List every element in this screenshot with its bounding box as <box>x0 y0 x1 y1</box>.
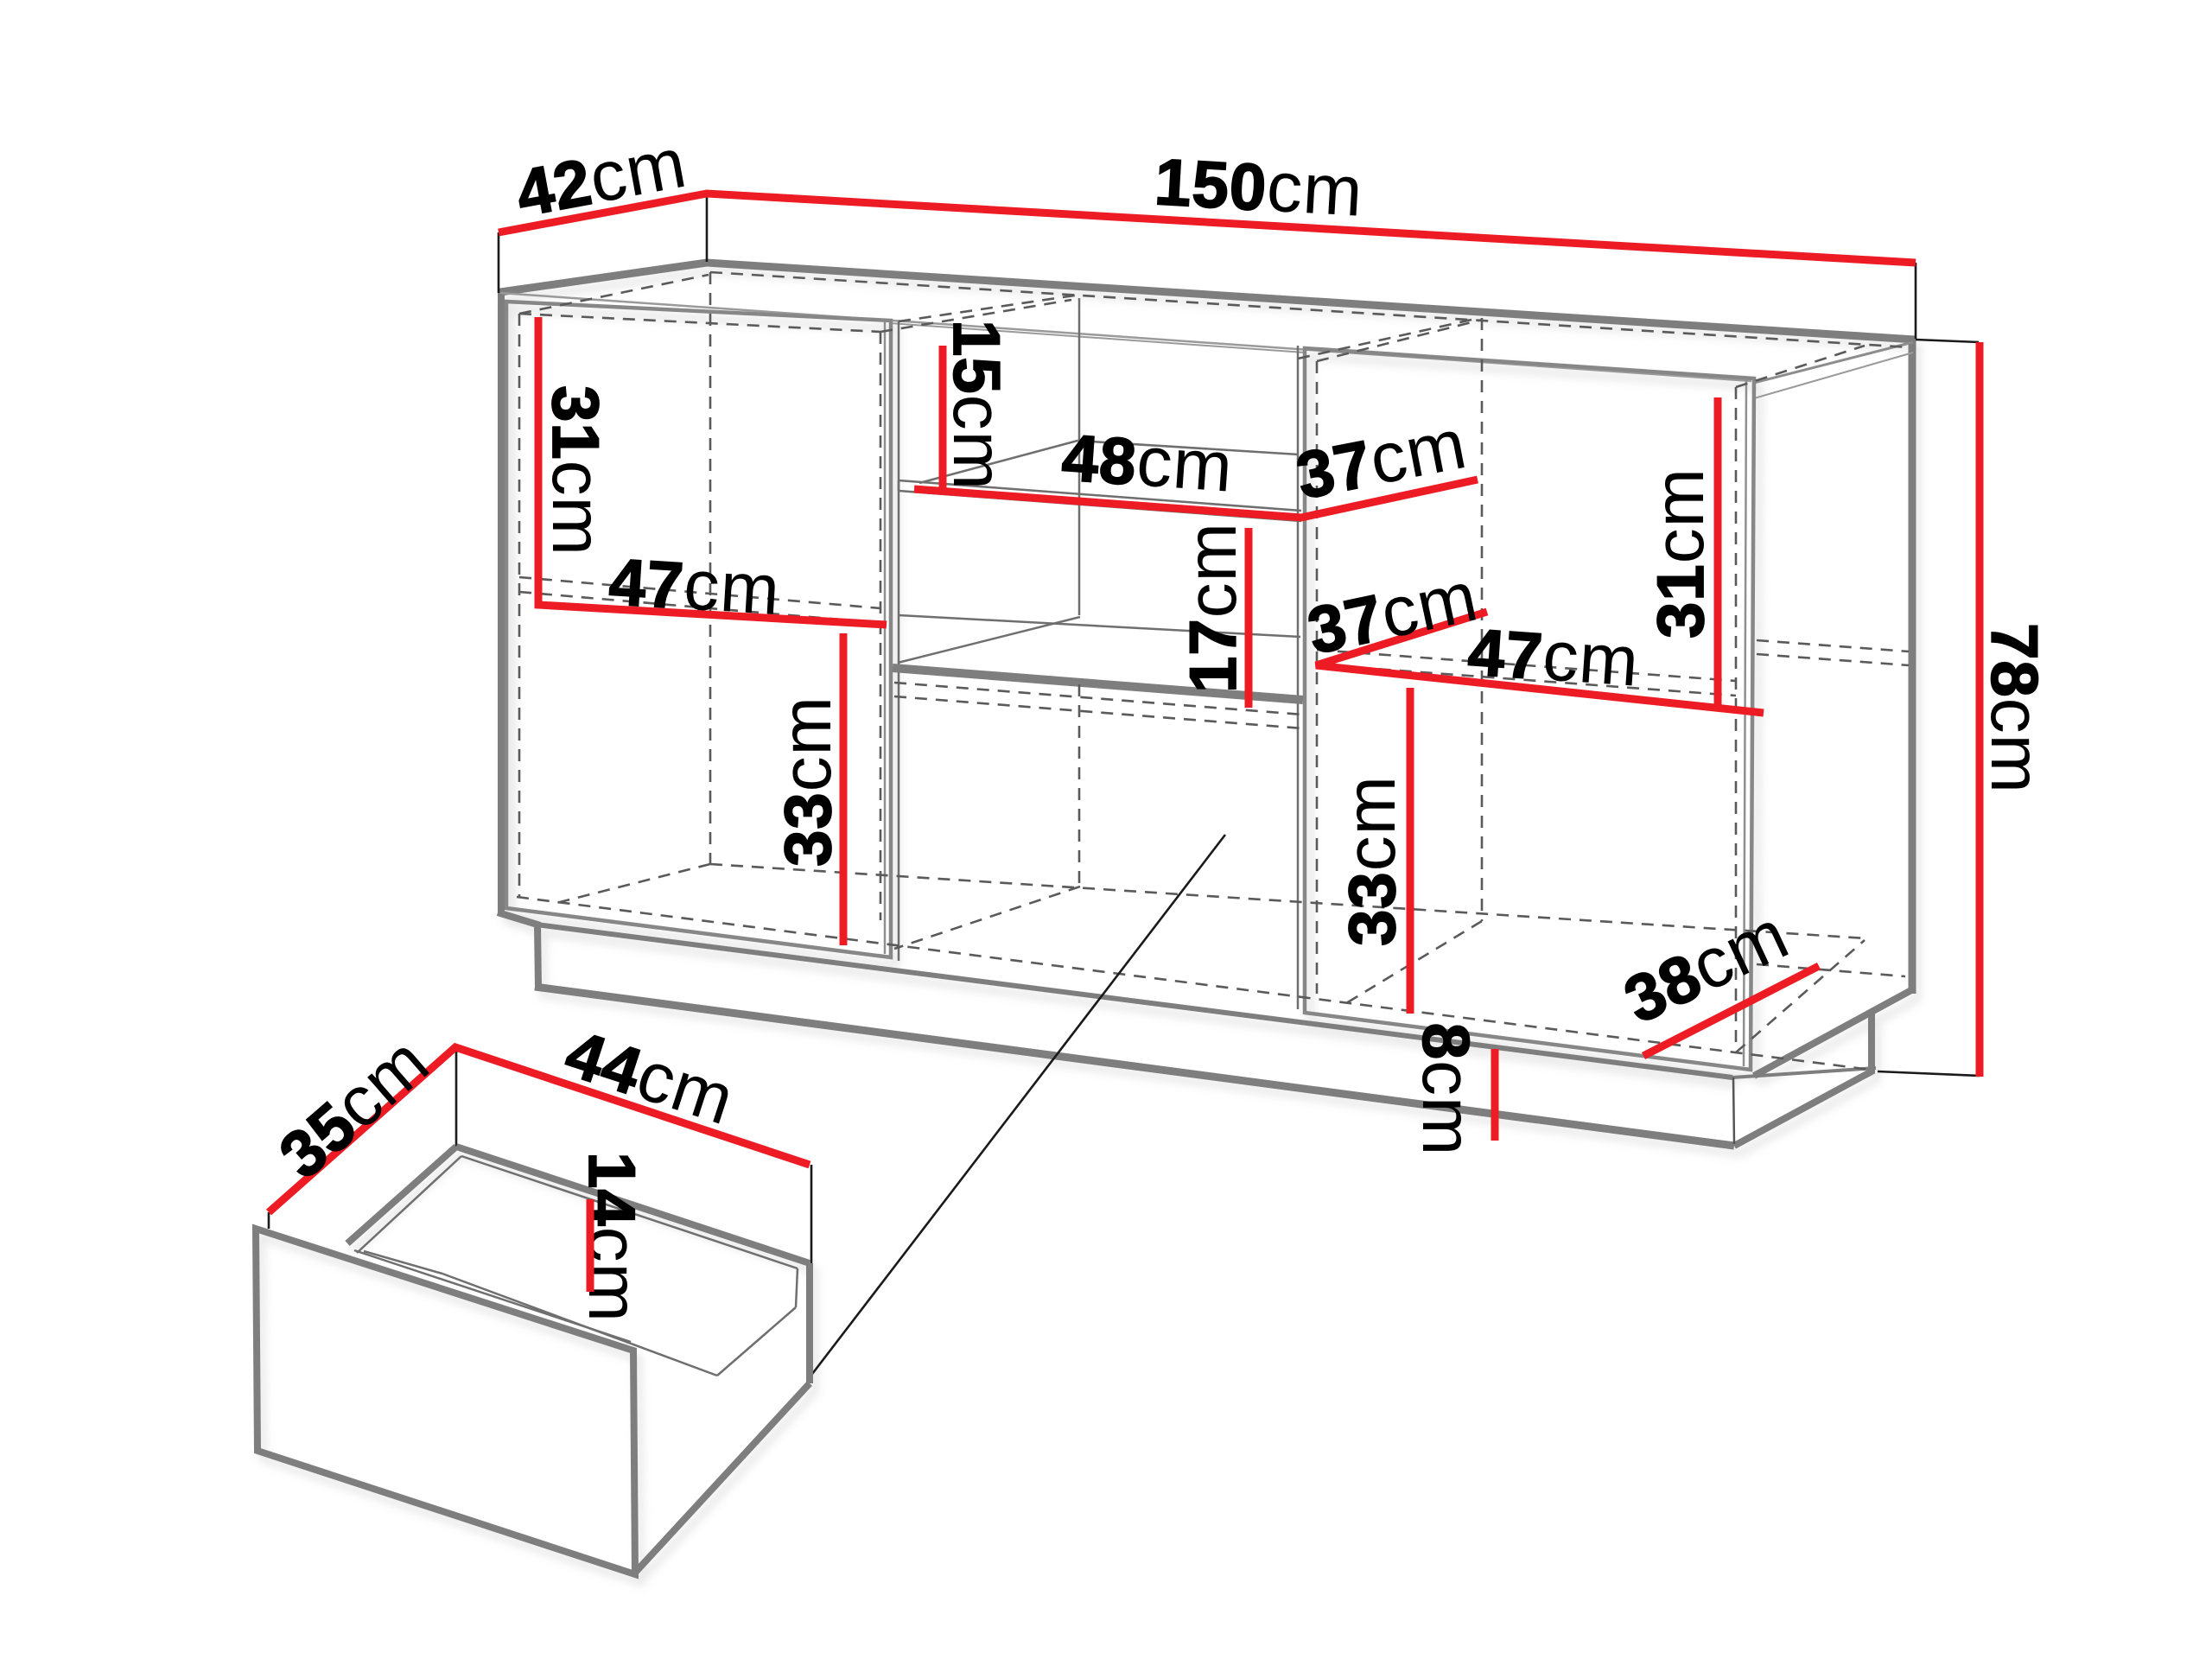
svg-text:33cm: 33cm <box>1332 775 1410 946</box>
svg-text:47cm: 47cm <box>1465 611 1642 702</box>
svg-text:31cm: 31cm <box>1640 467 1719 639</box>
svg-text:15cm: 15cm <box>938 320 1017 491</box>
svg-text:47cm: 47cm <box>607 541 783 630</box>
svg-text:78cm: 78cm <box>1976 623 2055 794</box>
svg-text:14cm: 14cm <box>574 1152 652 1323</box>
svg-text:17cm: 17cm <box>1173 522 1251 693</box>
svg-text:31cm: 31cm <box>537 385 616 556</box>
svg-text:48cm: 48cm <box>1059 416 1236 507</box>
svg-text:8cm: 8cm <box>1408 1023 1486 1157</box>
svg-text:150cm: 150cm <box>1153 141 1365 232</box>
svg-text:33cm: 33cm <box>767 696 846 867</box>
